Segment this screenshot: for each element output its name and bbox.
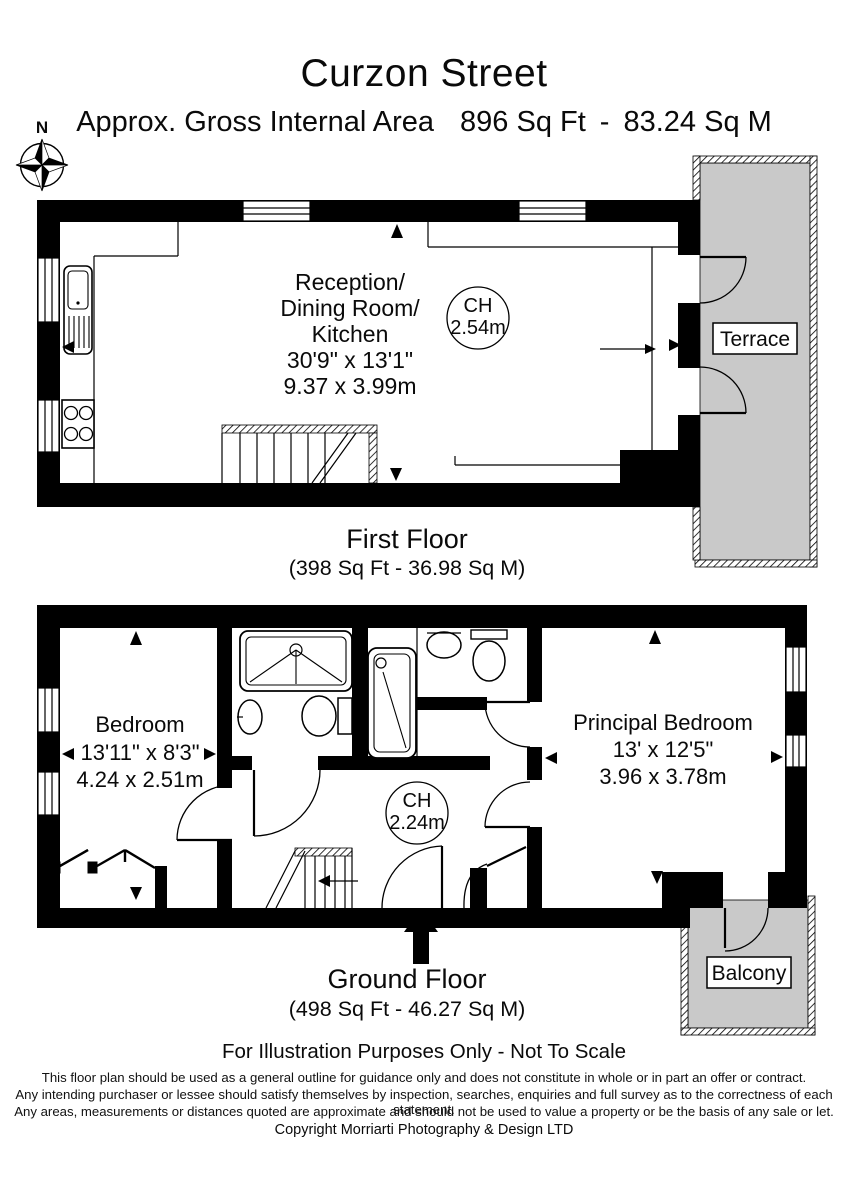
toilet-icon bbox=[302, 696, 352, 736]
floorplan-page: N bbox=[0, 0, 848, 1200]
ch-value: 2.54m bbox=[450, 317, 506, 339]
svg-text:Terrace: Terrace bbox=[720, 328, 790, 351]
bedroom-door bbox=[177, 785, 232, 840]
area-separator: - bbox=[600, 106, 610, 139]
wardrobe-icon bbox=[49, 850, 155, 873]
room-dims-imperial: 30'9" x 13'1" bbox=[287, 347, 413, 373]
reception-room-label: Reception/ Dining Room/ Kitchen 30'9" x … bbox=[280, 269, 420, 399]
window-icon bbox=[786, 735, 806, 767]
window-icon bbox=[786, 647, 806, 692]
stairs-icon bbox=[266, 848, 358, 908]
basin-icon bbox=[237, 700, 262, 734]
window-icon bbox=[243, 201, 310, 221]
disclaimer-line-3: Any areas, measurements or distances quo… bbox=[0, 1104, 848, 1119]
principal-bedroom-door bbox=[485, 782, 530, 827]
basin-icon bbox=[427, 632, 461, 658]
kitchen-sink-icon bbox=[64, 266, 92, 354]
area-metric: 83.24 Sq M bbox=[623, 106, 771, 139]
shower-room-door bbox=[254, 770, 320, 836]
first-floor-area: (398 Sq Ft - 36.98 Sq M) bbox=[0, 556, 814, 581]
shower-tray-icon bbox=[240, 631, 352, 691]
shower-cubicle-icon bbox=[368, 628, 417, 758]
toilet-icon bbox=[471, 630, 507, 681]
ceiling-height-badge-first-floor: CH 2.54m bbox=[447, 287, 509, 349]
ground-floor-caption: Ground Floor bbox=[0, 964, 814, 995]
svg-text:13'11" x 8'3": 13'11" x 8'3" bbox=[80, 740, 199, 765]
svg-text:4.24 x 2.51m: 4.24 x 2.51m bbox=[76, 767, 203, 792]
ceiling-height-badge-ground-floor: CH 2.24m bbox=[386, 782, 448, 844]
area-imperial: 896 Sq Ft bbox=[460, 106, 586, 139]
copyright-line: Copyright Morriarti Photography & Design… bbox=[0, 1122, 848, 1138]
area-prefix: Approx. Gross Internal Area bbox=[76, 106, 434, 139]
room-dims-metric: 9.37 x 3.99m bbox=[284, 373, 417, 399]
entrance-door bbox=[382, 846, 442, 908]
window-icon bbox=[38, 400, 59, 452]
bathroom2-door bbox=[485, 702, 530, 747]
terrace-label: Terrace bbox=[713, 323, 797, 354]
page-title: Curzon Street bbox=[0, 52, 848, 96]
first-floor-caption: First Floor bbox=[0, 524, 814, 555]
room-name-line3: Kitchen bbox=[312, 321, 389, 347]
room-name-line2: Dining Room/ bbox=[280, 295, 420, 321]
room-name-line1: Reception/ bbox=[295, 269, 406, 295]
terrace-area bbox=[693, 156, 817, 567]
window-icon bbox=[38, 772, 59, 815]
window-icon bbox=[38, 258, 59, 322]
svg-text:13' x 12'5": 13' x 12'5" bbox=[613, 737, 714, 762]
disclaimer-line-1: This floor plan should be used as a gene… bbox=[0, 1070, 848, 1085]
ch-value: 2.24m bbox=[389, 812, 445, 834]
svg-text:Bedroom: Bedroom bbox=[95, 712, 184, 737]
svg-text:3.96 x 3.78m: 3.96 x 3.78m bbox=[599, 764, 726, 789]
ch-label: CH bbox=[464, 295, 493, 317]
gross-internal-area: Approx. Gross Internal Area 896 Sq Ft - … bbox=[0, 106, 848, 139]
stairs-icon bbox=[222, 425, 377, 483]
principal-bedroom-label: Principal Bedroom 13' x 12'5" 3.96 x 3.7… bbox=[573, 710, 753, 789]
bedroom-label: Bedroom 13'11" x 8'3" 4.24 x 2.51m bbox=[76, 712, 203, 792]
svg-text:Principal Bedroom: Principal Bedroom bbox=[573, 710, 753, 735]
hob-icon bbox=[62, 400, 94, 448]
ch-label: CH bbox=[403, 790, 432, 812]
window-icon bbox=[519, 201, 586, 221]
window-icon bbox=[38, 688, 59, 732]
illustration-notice: For Illustration Purposes Only - Not To … bbox=[0, 1040, 848, 1064]
ground-floor-area: (498 Sq Ft - 46.27 Sq M) bbox=[0, 997, 814, 1022]
